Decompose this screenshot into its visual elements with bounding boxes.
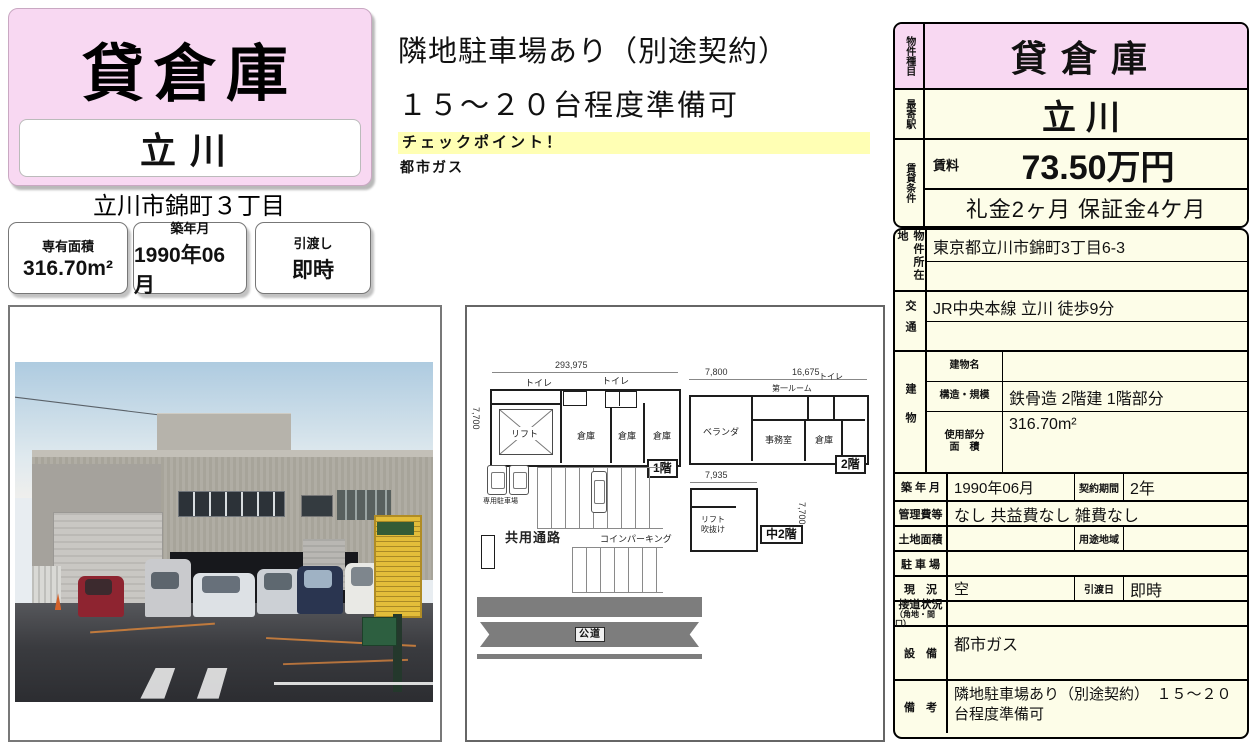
row-equipment: 設 備 都市ガス [895, 627, 1247, 681]
access-label: 交通 [895, 292, 927, 350]
property-type-banner: 貸倉庫 立川 [8, 8, 372, 186]
equipment-value: 都市ガス [948, 627, 1247, 679]
type-value: 貸倉庫 [925, 24, 1247, 90]
summary-box-area: 専有面積 316.70m² [8, 222, 128, 294]
plan-mezz-lift-line1: リフト [701, 515, 725, 525]
row-location: 物件所在地 東京都立川市錦町3丁目6-3 [895, 230, 1247, 292]
zoning-value [1124, 527, 1247, 550]
plan-wall [751, 397, 753, 461]
plan-2f-dim-w2: 16,675 [792, 367, 820, 377]
plan-mezz-dim-w: 7,935 [705, 470, 728, 480]
row-mgmt-fee: 管理費等 なし 共益費なし 雑費なし [895, 502, 1247, 527]
handover-value: 即時 [1124, 577, 1247, 600]
property-type-title: 貸倉庫 [9, 23, 371, 113]
roadside-value [948, 602, 1247, 625]
note-parking-line2: １５～２０台程度準備可 [398, 82, 739, 124]
summary-handover-value: 即時 [292, 254, 334, 284]
fees-value: 礼金2ヶ月 保証金4ケ月 [925, 190, 1247, 226]
used-area-label-2: 面 積 [950, 442, 980, 455]
used-area-label: 使用部分 面 積 [927, 412, 1003, 472]
rent-label: 賃料 [933, 155, 959, 174]
property-address: 立川市錦町３丁目 [0, 186, 378, 221]
plan-wall [492, 403, 560, 405]
plan-wall [692, 506, 736, 508]
plan-2f-dim-w1: 7,800 [705, 367, 728, 377]
plan-1f-lift-label: リフト [511, 427, 538, 440]
row-land-area: 土地面積 用途地域 [895, 527, 1247, 552]
property-name-box: 立川 [19, 119, 361, 177]
plan-1f-toilet-label: トイレ [525, 376, 552, 389]
photo-car-navy [297, 566, 343, 614]
plan-2f-storage-label: 倉庫 [815, 433, 833, 446]
plan-1f-toilet-label: トイレ [602, 374, 629, 387]
rent-row: 賃料 73.50万円 [925, 140, 1247, 190]
remarks-label: 備 考 [895, 681, 948, 733]
checkpoint-banner: チェックポイント！ [398, 132, 870, 154]
photo-window-strip [178, 491, 285, 517]
plan-mezz-lift-line2: 吹抜け [701, 525, 725, 535]
plan-2f-firstroom-label: 第一ルーム [772, 383, 812, 394]
plan-1f-storage-label: 倉庫 [618, 429, 636, 442]
plan-1f-toilet-room [563, 391, 587, 406]
plan-1f-storage-label: 倉庫 [577, 429, 595, 442]
plan-2f-toilet-label: トイレ [819, 371, 843, 382]
plan-mezz-badge: 中2階 [760, 525, 803, 544]
mgmt-fee-value: なし 共益費なし 雑費なし [948, 502, 1247, 525]
building-photo [15, 362, 433, 702]
plan-wall [807, 397, 809, 419]
parking-label: 駐 車 場 [895, 552, 948, 575]
row-access: 交通 JR中央本線 立川 徒歩9分 [895, 292, 1247, 352]
plan-wall [804, 421, 806, 461]
building-name-label: 建物名 [927, 352, 1003, 381]
location-label: 物件所在地 [895, 230, 927, 290]
station-label: 最寄駅 [895, 90, 925, 140]
plan-1f-dim-height: 7,700 [471, 407, 481, 430]
location-value-2 [927, 262, 1247, 290]
plan-car-icon [509, 465, 529, 495]
plan-2f-office-label: 事務室 [765, 433, 792, 446]
plan-1f-storage-label: 倉庫 [653, 429, 671, 442]
photo-green-sign [362, 617, 397, 646]
photo-window-right [301, 495, 332, 517]
plan-small-structure [481, 535, 495, 569]
summary-box-handover: 引渡し 即時 [255, 222, 371, 294]
building-name-value [1003, 352, 1247, 381]
contract-label: 契約期間 [1074, 474, 1124, 500]
photo-van-silver [145, 559, 191, 617]
photo-road-line [274, 682, 433, 685]
zoning-label: 用途地域 [1074, 527, 1124, 550]
plan-wall [643, 403, 645, 463]
plan-coin-parking-label: コインパーキング [600, 532, 672, 545]
terms-label: 賃貸条件 [895, 140, 925, 226]
plan-dim-line [492, 372, 678, 373]
remarks-value: 隣地駐車場あり（別途契約） １５～２０台程度準備可 [948, 681, 1247, 733]
handover-label: 引渡日 [1074, 577, 1124, 600]
detail-table: 物件所在地 東京都立川市錦町3丁目6-3 交通 JR中央本線 立川 徒歩9分 建… [893, 228, 1249, 739]
plan-wall [610, 403, 612, 463]
station-value: 立川 [925, 90, 1247, 140]
structure-value: 鉄骨造 2階建 1階部分 [1003, 382, 1247, 411]
summary-handover-label: 引渡し [293, 233, 332, 252]
type-label: 物件種目 [895, 24, 925, 90]
summary-area-value: 316.70m² [23, 257, 113, 281]
photo-car-white [193, 573, 256, 617]
structure-label: 構造・規模 [927, 382, 1003, 411]
plan-wall [619, 391, 620, 406]
location-value: 東京都立川市錦町3丁目6-3 [927, 230, 1247, 261]
roadside-label: 接道状況 （角地・間口） [895, 602, 948, 625]
equipment-label: 設 備 [895, 627, 948, 679]
access-value-2 [927, 322, 1247, 350]
plan-road-label: 公道 [575, 627, 605, 642]
row-building: 建物 建物名 構造・規模 鉄骨造 2階建 1階部分 使用部分 面 積 316.7… [895, 352, 1247, 474]
summary-box-built: 築年月 1990年06月 [133, 222, 247, 294]
summary-built-value: 1990年06月 [134, 239, 246, 299]
row-status: 現 況 空 引渡日 即時 [895, 577, 1247, 602]
row-remarks: 備 考 隣地駐車場あり（別途契約） １５～２０台程度準備可 [895, 681, 1247, 733]
property-name: 立川 [140, 122, 240, 174]
used-area-value: 316.70m² [1003, 412, 1247, 472]
plan-shared-passage-label: 共用通路 [505, 527, 561, 546]
plan-2f-veranda-label: ベランダ [703, 425, 739, 438]
summary-table: 物件種目 貸倉庫 最寄駅 立川 賃貸条件 賃料 73.50万円 礼金2ヶ月 保証… [893, 22, 1249, 228]
plan-parking-stalls [572, 547, 663, 593]
checkpoint-item: 都市ガス [400, 157, 464, 177]
plan-wall [833, 397, 835, 419]
land-area-value [948, 527, 1074, 550]
plan-wall [753, 419, 865, 421]
status-value: 空 [948, 577, 1074, 600]
row-parking: 駐 車 場 [895, 552, 1247, 577]
plan-road-band [477, 654, 702, 659]
built-value: 1990年06月 [948, 474, 1074, 500]
row-roadside: 接道状況 （角地・間口） [895, 602, 1247, 627]
built-label: 築 年 月 [895, 474, 948, 500]
plan-2f-badge: 2階 [835, 455, 866, 474]
roadside-label-sub: （角地・間口） [895, 611, 946, 629]
plan-private-parking-label: 専用駐車場 [483, 496, 518, 506]
plan-1f-toilet-room [605, 391, 637, 408]
plan-1f-dim-width: 293,975 [555, 360, 588, 370]
summary-area-label: 専有面積 [42, 236, 94, 255]
floorplan: 293,975 トイレ トイレ 7,700 リフト 倉庫 倉庫 倉庫 1階 7,… [465, 305, 885, 742]
land-area-label: 土地面積 [895, 527, 948, 550]
plan-car-icon [487, 465, 507, 495]
note-parking-line1: 隣地駐車場あり（別途契約） [398, 28, 788, 70]
summary-built-label: 築年月 [170, 218, 209, 237]
plan-mezz-dim-h: 7,700 [797, 502, 807, 525]
plan-road-band [477, 597, 702, 617]
parking-value [948, 552, 1247, 575]
roadside-label-main: 接道状況 [899, 599, 943, 611]
access-value: JR中央本線 立川 徒歩9分 [927, 292, 1247, 321]
rent-value: 73.50万円 [969, 140, 1227, 189]
building-photo-frame [8, 305, 442, 742]
row-built: 築 年 月 1990年06月 契約期間 2年 [895, 474, 1247, 502]
used-area-label-1: 使用部分 [945, 430, 985, 443]
status-label: 現 況 [895, 577, 948, 600]
plan-car-icon [591, 471, 607, 513]
plan-wall [560, 391, 562, 463]
photo-sign-header [377, 522, 415, 536]
building-label: 建物 [895, 352, 927, 472]
photo-cornice [32, 450, 433, 457]
plan-dim-line [690, 482, 757, 483]
photo-white-fence [32, 566, 61, 603]
photo-car-red [78, 576, 124, 617]
contract-value: 2年 [1124, 474, 1247, 500]
mgmt-fee-label: 管理費等 [895, 502, 948, 525]
